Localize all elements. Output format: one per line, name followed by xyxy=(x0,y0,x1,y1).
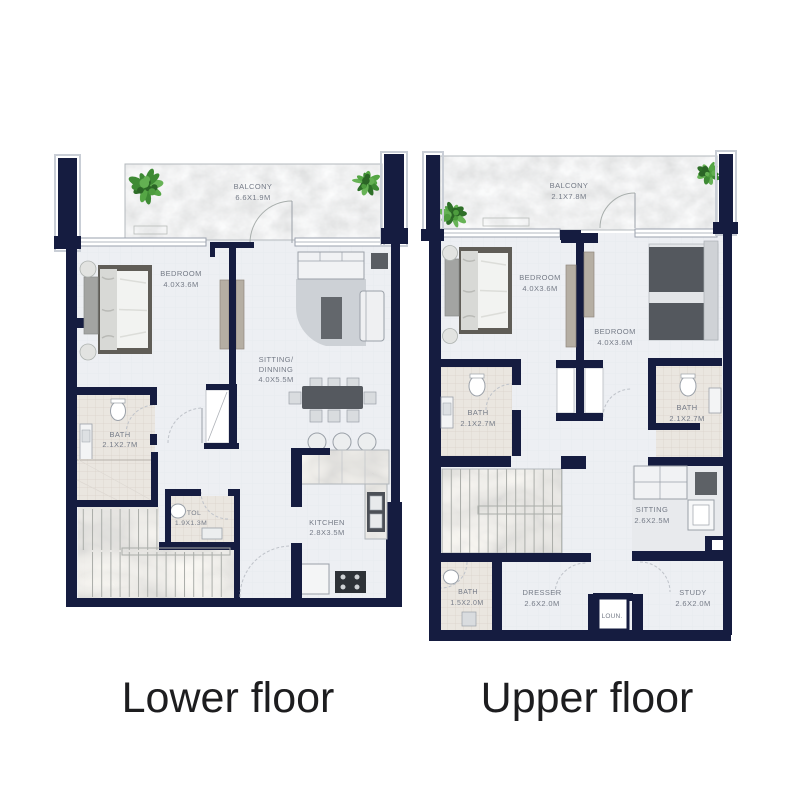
svg-text:4.0X3.6M: 4.0X3.6M xyxy=(597,338,632,347)
svg-text:2.6X2.0M: 2.6X2.0M xyxy=(675,599,710,608)
svg-text:BEDROOM: BEDROOM xyxy=(519,273,561,282)
svg-text:2.1X2.7M: 2.1X2.7M xyxy=(669,414,704,423)
svg-text:BALCONY: BALCONY xyxy=(234,182,273,191)
svg-text:2.8X3.5M: 2.8X3.5M xyxy=(309,528,344,537)
svg-text:2.6X2.5M: 2.6X2.5M xyxy=(634,516,669,525)
svg-text:2.1X2.7M: 2.1X2.7M xyxy=(460,419,495,428)
svg-text:2.1X2.7M: 2.1X2.7M xyxy=(102,440,137,449)
svg-text:1.9X1.3M: 1.9X1.3M xyxy=(175,520,207,527)
svg-text:6.6X1.9M: 6.6X1.9M xyxy=(235,193,270,202)
svg-text:2.1X7.8M: 2.1X7.8M xyxy=(551,192,586,201)
svg-text:2.6X2.0M: 2.6X2.0M xyxy=(524,599,559,608)
svg-text:Upper floor: Upper floor xyxy=(481,674,694,722)
svg-text:4.0X5.5M: 4.0X5.5M xyxy=(258,375,293,384)
svg-text:4.0X3.6M: 4.0X3.6M xyxy=(163,280,198,289)
svg-text:BATH: BATH xyxy=(109,430,130,439)
svg-text:SITTING: SITTING xyxy=(636,505,668,514)
svg-text:SITTING/: SITTING/ xyxy=(259,355,294,364)
svg-text:4.0X3.6M: 4.0X3.6M xyxy=(522,284,557,293)
svg-text:BEDROOM: BEDROOM xyxy=(594,327,636,336)
svg-text:KITCHEN: KITCHEN xyxy=(309,518,345,527)
svg-text:BEDROOM: BEDROOM xyxy=(160,269,202,278)
svg-text:BALCONY: BALCONY xyxy=(550,181,589,190)
svg-text:BATH: BATH xyxy=(676,403,697,412)
svg-text:STUDY: STUDY xyxy=(679,588,706,597)
svg-text:TOL: TOL xyxy=(187,510,201,517)
svg-text:DINNING: DINNING xyxy=(259,365,293,374)
svg-text:LOUN.: LOUN. xyxy=(602,613,623,620)
svg-text:BATH: BATH xyxy=(467,408,488,417)
svg-text:Lower floor: Lower floor xyxy=(122,674,335,722)
svg-text:DRESSER: DRESSER xyxy=(522,588,561,597)
svg-text:BATH: BATH xyxy=(458,589,478,596)
svg-text:1.5X2.0M: 1.5X2.0M xyxy=(450,600,483,607)
